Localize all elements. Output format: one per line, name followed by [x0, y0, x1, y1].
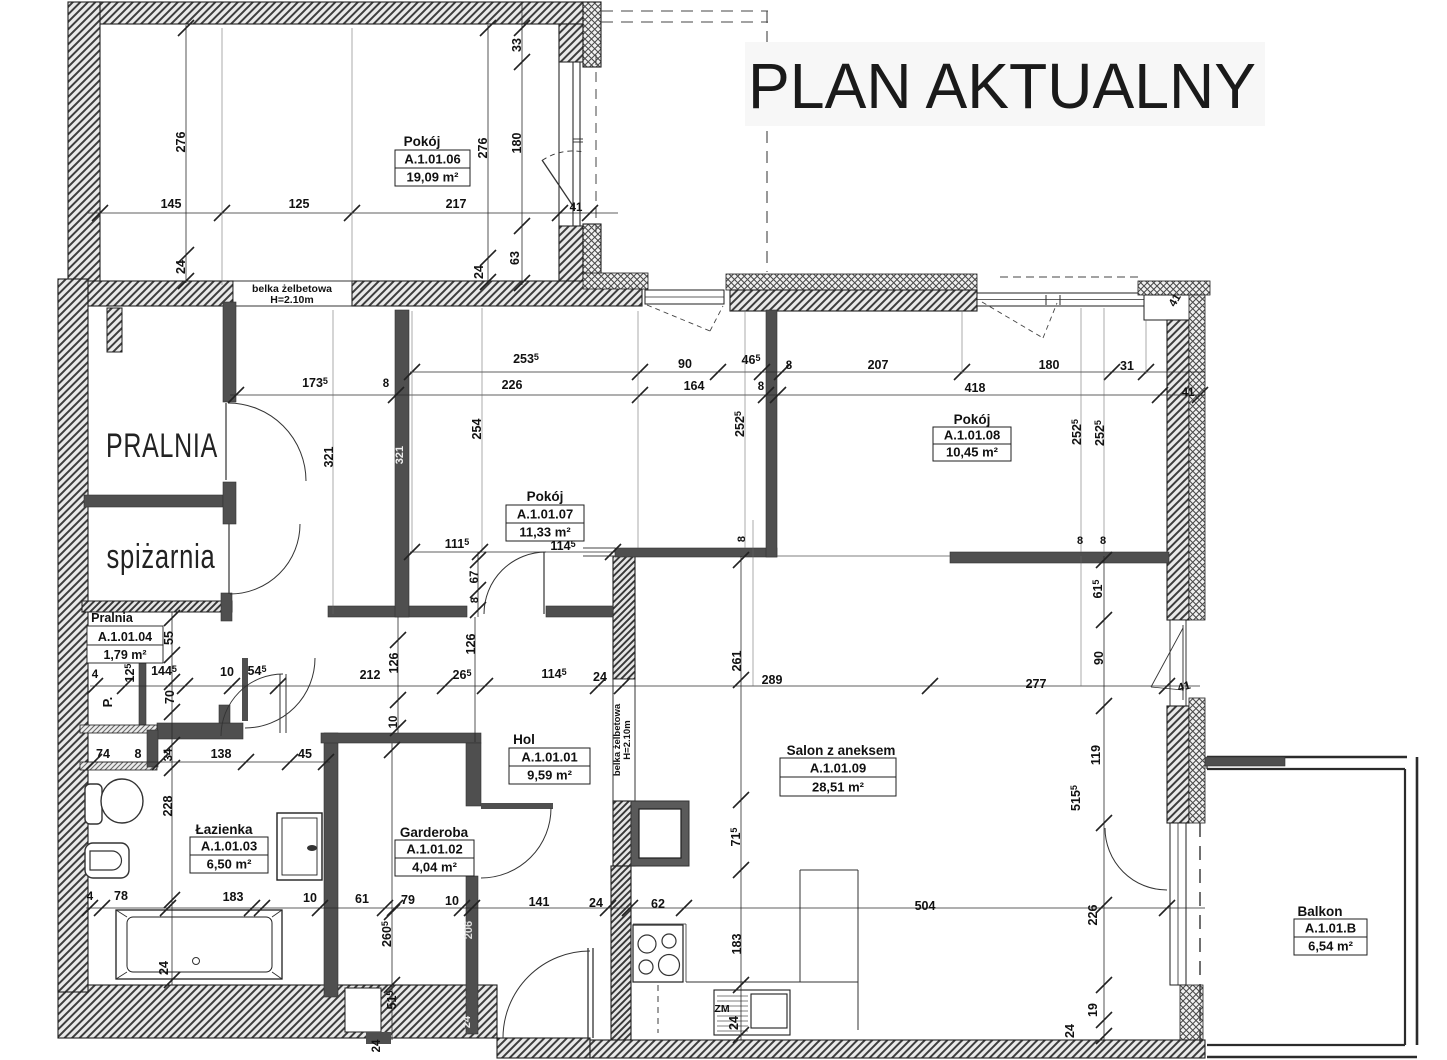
- svg-text:A.1.01.01: A.1.01.01: [521, 750, 577, 765]
- svg-text:PRALNIA: PRALNIA: [106, 427, 218, 465]
- svg-text:41: 41: [1182, 387, 1195, 399]
- svg-text:H=2.10m: H=2.10m: [622, 720, 633, 759]
- svg-text:289: 289: [762, 673, 783, 687]
- svg-text:504: 504: [915, 899, 936, 913]
- svg-text:34: 34: [163, 748, 175, 761]
- svg-text:321: 321: [322, 447, 336, 468]
- svg-text:207: 207: [868, 358, 889, 372]
- svg-text:A.1.01.08: A.1.01.08: [944, 428, 1000, 443]
- svg-text:418: 418: [965, 381, 986, 395]
- svg-text:276: 276: [174, 132, 188, 153]
- svg-text:11,33 m²: 11,33 m²: [519, 525, 571, 540]
- svg-text:24: 24: [593, 670, 607, 684]
- svg-text:31: 31: [1120, 359, 1134, 373]
- svg-text:261: 261: [730, 651, 744, 672]
- svg-text:24: 24: [461, 1015, 473, 1028]
- svg-text:45: 45: [298, 747, 312, 761]
- svg-text:228: 228: [161, 796, 175, 817]
- svg-text:10,45 m²: 10,45 m²: [946, 445, 999, 460]
- svg-text:spiżarnia: spiżarnia: [107, 538, 216, 576]
- svg-text:10: 10: [445, 894, 459, 908]
- svg-text:8: 8: [1100, 535, 1106, 547]
- svg-text:10: 10: [220, 665, 234, 679]
- svg-text:28,51 m²: 28,51 m²: [812, 780, 865, 795]
- svg-text:24: 24: [589, 896, 603, 910]
- svg-text:A.1.01.07: A.1.01.07: [517, 507, 573, 522]
- svg-text:276: 276: [476, 138, 490, 159]
- svg-text:Łazienka: Łazienka: [195, 822, 253, 837]
- svg-text:19,09 m²: 19,09 m²: [406, 170, 459, 185]
- svg-text:119: 119: [1089, 745, 1103, 765]
- svg-text:Balkon: Balkon: [1297, 904, 1342, 919]
- svg-text:8: 8: [736, 536, 748, 542]
- svg-text:24: 24: [174, 260, 188, 274]
- svg-text:55: 55: [162, 631, 176, 645]
- svg-text:A.1.01.06: A.1.01.06: [404, 152, 460, 167]
- svg-text:10: 10: [388, 716, 400, 729]
- svg-text:126: 126: [464, 634, 478, 655]
- svg-text:70: 70: [163, 690, 177, 704]
- svg-text:9,59 m²: 9,59 m²: [527, 768, 572, 783]
- svg-text:H=2.10m: H=2.10m: [270, 294, 314, 306]
- svg-text:164: 164: [684, 379, 705, 393]
- svg-text:183: 183: [223, 890, 244, 904]
- svg-text:Salon z aneksem: Salon z aneksem: [787, 743, 896, 758]
- svg-text:4,04 m²: 4,04 m²: [412, 860, 457, 875]
- svg-text:138: 138: [211, 747, 232, 761]
- svg-text:10: 10: [303, 891, 317, 905]
- svg-text:125: 125: [289, 197, 310, 211]
- svg-text:Pokój: Pokój: [527, 489, 564, 504]
- svg-text:P.: P.: [100, 697, 115, 708]
- svg-text:4: 4: [92, 669, 99, 681]
- svg-text:254: 254: [470, 419, 484, 440]
- svg-text:180: 180: [1039, 358, 1060, 372]
- svg-text:4: 4: [87, 891, 94, 903]
- svg-text:277: 277: [1026, 677, 1047, 691]
- svg-text:24: 24: [472, 265, 486, 279]
- svg-text:A.1.01.03: A.1.01.03: [201, 839, 257, 854]
- svg-text:A.1.01.09: A.1.01.09: [810, 761, 866, 776]
- svg-text:ZM: ZM: [714, 1003, 729, 1015]
- svg-text:8: 8: [383, 378, 390, 390]
- svg-text:19: 19: [1086, 1003, 1100, 1017]
- svg-text:8: 8: [469, 597, 481, 603]
- svg-text:Hol: Hol: [513, 732, 535, 747]
- svg-text:126: 126: [387, 653, 401, 674]
- svg-text:206: 206: [463, 921, 475, 939]
- svg-text:217: 217: [446, 197, 467, 211]
- svg-text:145: 145: [161, 197, 182, 211]
- svg-text:226: 226: [502, 378, 523, 392]
- svg-text:183: 183: [730, 934, 744, 955]
- svg-text:24: 24: [1063, 1024, 1077, 1038]
- svg-text:24: 24: [157, 961, 171, 975]
- svg-text:24: 24: [371, 1039, 383, 1052]
- svg-text:Pokój: Pokój: [954, 412, 991, 427]
- svg-text:Garderoba: Garderoba: [400, 825, 469, 840]
- svg-text:Pralnia: Pralnia: [91, 611, 134, 625]
- svg-text:24: 24: [727, 1016, 741, 1030]
- svg-text:62: 62: [651, 897, 665, 911]
- svg-text:Pokój: Pokój: [404, 134, 441, 149]
- svg-text:1,79 m²: 1,79 m²: [103, 648, 146, 662]
- svg-text:67: 67: [469, 571, 481, 584]
- svg-text:180: 180: [510, 133, 524, 154]
- svg-text:90: 90: [1092, 651, 1106, 665]
- svg-text:78: 78: [114, 889, 128, 903]
- svg-text:212: 212: [360, 668, 381, 682]
- svg-text:321: 321: [394, 446, 406, 464]
- svg-text:8: 8: [1077, 535, 1083, 547]
- svg-text:33: 33: [510, 38, 524, 52]
- svg-text:63: 63: [508, 251, 522, 265]
- svg-text:8: 8: [786, 360, 793, 372]
- svg-text:8: 8: [758, 381, 765, 393]
- svg-text:6,50 m²: 6,50 m²: [207, 857, 252, 872]
- svg-text:61: 61: [355, 892, 369, 906]
- svg-text:A.1.01.B: A.1.01.B: [1305, 921, 1356, 936]
- svg-text:A.1.01.04: A.1.01.04: [98, 630, 152, 644]
- svg-text:141: 141: [529, 895, 550, 909]
- svg-text:A.1.01.02: A.1.01.02: [406, 842, 462, 857]
- svg-text:90: 90: [678, 357, 692, 371]
- svg-text:6,54 m²: 6,54 m²: [1308, 939, 1353, 954]
- svg-text:41: 41: [570, 202, 583, 214]
- svg-text:8: 8: [135, 747, 142, 761]
- svg-text:PLAN AKTUALNY: PLAN AKTUALNY: [748, 50, 1256, 122]
- svg-text:79: 79: [401, 893, 415, 907]
